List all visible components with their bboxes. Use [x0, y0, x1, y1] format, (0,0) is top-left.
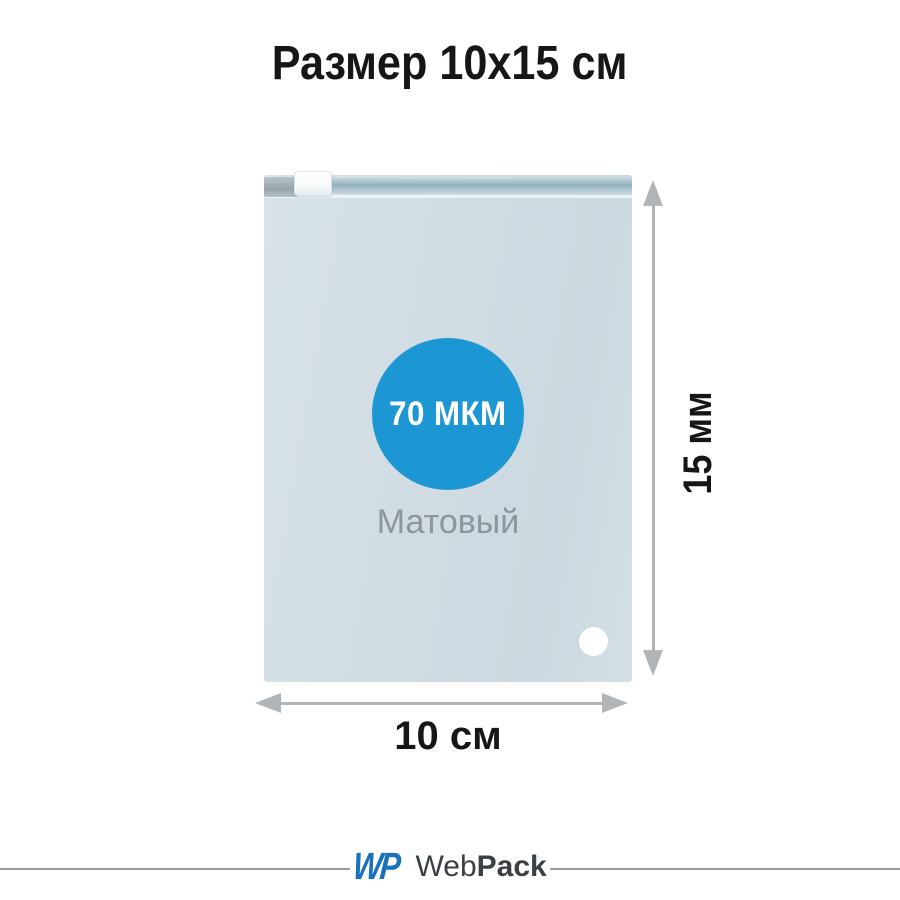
finish-label: Матовый [264, 503, 632, 542]
page-title: Размер 10х15 см [0, 36, 900, 91]
wp-logo-icon: WP [352, 848, 401, 886]
height-dimension-label: 15 мм [678, 371, 718, 515]
footer-divider-left [0, 868, 350, 870]
arrow-right-icon [602, 693, 628, 713]
zip-bag-image: 70 МКМ Матовый [264, 175, 632, 682]
arrow-down-icon [643, 650, 663, 676]
width-dimension-text: 10 см [394, 714, 501, 759]
width-dimension-label: 10 см [264, 714, 632, 759]
brand-name: WebPack [416, 852, 547, 882]
thickness-badge: 70 МКМ [372, 338, 524, 490]
brand-name-pack: Pack [477, 850, 547, 883]
horizontal-arrow-shaft [278, 702, 618, 705]
hang-hole [579, 627, 608, 656]
zipper-end [264, 177, 298, 197]
zipper-slider [294, 171, 332, 196]
vertical-arrow-shaft [652, 198, 655, 658]
height-dimension-text: 15 мм [676, 391, 721, 494]
brand-name-web: Web [416, 850, 477, 883]
page-title-text: Размер 10х15 см [272, 36, 628, 91]
brand-logo: WP WebPack [360, 847, 540, 887]
footer-divider-right [550, 868, 900, 870]
thickness-label: 70 МКМ [389, 395, 506, 434]
